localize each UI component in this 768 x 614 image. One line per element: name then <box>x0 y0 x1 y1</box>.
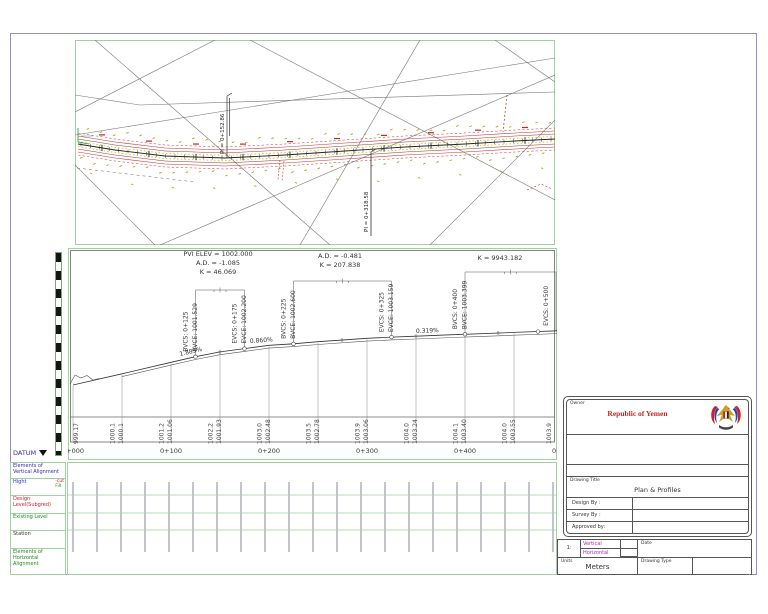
plan-view: PI = 0+152.86PI = 0+318.58 <box>75 40 555 245</box>
svg-text:1000.1: 1000.1 <box>118 423 125 444</box>
row-existing-level-label: Existing Level <box>11 514 65 531</box>
row-height-label: Hight -cutFill <box>11 479 65 496</box>
data-grid <box>67 462 557 575</box>
datum-label: DATUM <box>13 449 47 457</box>
svg-text:0+200: 0+200 <box>258 447 280 455</box>
title-block-inner: Owner Republic of Yemen <box>566 399 749 534</box>
owner-label: Owner <box>570 401 585 406</box>
misc-features <box>77 95 552 190</box>
drawing-type-label: Drawing Type <box>641 559 671 564</box>
svg-text:BVCE: 1002.600: BVCE: 1002.600 <box>290 290 297 339</box>
svg-text:0+100: 0+100 <box>160 447 182 455</box>
yemen-emblem-icon <box>709 402 743 432</box>
svg-text:1003.9: 1003.9 <box>546 423 553 444</box>
svg-text:PI = 0+318.58: PI = 0+318.58 <box>364 191 370 232</box>
horizontal-scale-label: Horizontal <box>581 549 620 558</box>
svg-text:1003.5: 1003.5 <box>306 423 313 444</box>
title-owner-row: Owner Republic of Yemen <box>567 400 748 435</box>
row-design-level-label: Design Level(Subgred) <box>11 496 65 514</box>
date-label: Date <box>641 541 652 546</box>
date-cell: Date <box>638 540 751 557</box>
drawing-title-row: Drawing Title Plan & Profiles <box>567 477 748 498</box>
project-info-box <box>567 435 748 465</box>
svg-text:BVCS: 0+400: BVCS: 0+400 <box>452 289 459 329</box>
scale-value: 1: <box>558 540 581 557</box>
datum-arrow-icon <box>39 450 47 456</box>
datum-scale-bar <box>55 252 62 456</box>
svg-text:0.319%: 0.319% <box>416 327 439 335</box>
corner-marks: ·· <box>745 571 751 579</box>
svg-text:0+300: 0+300 <box>356 447 378 455</box>
scale-value-cells <box>621 540 638 557</box>
profile-frame <box>71 251 555 443</box>
svg-text:1003.24: 1003.24 <box>412 419 419 444</box>
svg-text:0.860%: 0.860% <box>250 336 274 345</box>
svg-text:1004.1: 1004.1 <box>453 423 460 444</box>
svg-text:BVCS: 0+125: BVCS: 0+125 <box>183 311 190 351</box>
svg-text:A.D. = -0.481: A.D. = -0.481 <box>318 252 362 260</box>
svg-text:1002.2: 1002.2 <box>208 423 215 444</box>
svg-text:1003.9: 1003.9 <box>355 423 362 444</box>
approved-by-row: Approved by: <box>567 522 748 534</box>
svg-text:EVCS: 0+325: EVCS: 0+325 <box>379 292 386 332</box>
svg-text:1004.0: 1004.0 <box>502 423 509 444</box>
units-cell: Units Meters <box>558 558 638 574</box>
row-horizontal-alignment-label: Elements of Horizontal Alignment <box>11 549 65 575</box>
svg-text:1002.48: 1002.48 <box>265 419 272 444</box>
drawing-sheet: PI = 0+152.86PI = 0+318.58 999.170+00010… <box>0 0 768 614</box>
design-by-label: Design By : <box>567 498 633 509</box>
svg-text:1001.93: 1001.93 <box>216 419 223 444</box>
data-grid-lines <box>68 482 556 552</box>
svg-text:EVCS: 0+175: EVCS: 0+175 <box>232 303 239 343</box>
svg-text:0+400: 0+400 <box>454 447 476 455</box>
svg-text:1003.40: 1003.40 <box>461 419 468 444</box>
svg-text:1004.0: 1004.0 <box>404 423 411 444</box>
country-title: Republic of Yemen <box>567 409 708 418</box>
scale-direction-labels: Vertical Horizontal <box>581 540 621 557</box>
drawing-type-cell: Drawing Type <box>638 558 693 574</box>
svg-text:999.17: 999.17 <box>73 423 80 444</box>
svg-text:1003.55: 1003.55 <box>510 419 517 444</box>
row-station-label: Station <box>11 531 65 549</box>
svg-text:0+500: 0+500 <box>552 447 557 455</box>
scale-row: 1: Vertical Horizontal Date <box>558 540 751 558</box>
svg-text:PI = 0+152.86: PI = 0+152.86 <box>220 113 226 154</box>
row-vertical-alignment-label: Elements of Vertical Alignment <box>11 463 65 479</box>
svg-text:1003.06: 1003.06 <box>363 419 370 444</box>
drawing-title: Plan & Profiles <box>567 486 748 494</box>
svg-text:A.D. = -1.085: A.D. = -1.085 <box>196 259 240 267</box>
cut-fill-labels: -cutFill <box>55 480 64 489</box>
empty-cell <box>693 558 751 574</box>
profile-content: 999.170+0001000.11000.11001.21001.060+10… <box>68 250 557 455</box>
survey-by-row: Survey By : <box>567 510 748 522</box>
units-value: Meters <box>558 563 637 571</box>
profile-band-labels: Elements of Vertical Alignment Hight -cu… <box>10 462 66 575</box>
svg-text:1002.78: 1002.78 <box>314 419 321 444</box>
svg-text:K = 207.838: K = 207.838 <box>320 261 361 269</box>
height-label: Hight <box>13 479 26 485</box>
svg-text:1001.2: 1001.2 <box>159 423 166 444</box>
survey-by-label: Survey By : <box>567 510 633 521</box>
design-by-row: Design By : <box>567 498 748 510</box>
scale-units-table: 1: Vertical Horizontal Date Units Meters… <box>557 539 752 575</box>
svg-text:PVI ELEV = 1002.000: PVI ELEV = 1002.000 <box>183 250 252 258</box>
svg-text:K = 9943.182: K = 9943.182 <box>478 254 523 262</box>
svg-text:BVCE: 1003.399: BVCE: 1003.399 <box>462 280 469 329</box>
drawing-title-label: Drawing Title <box>570 478 600 483</box>
svg-text:1001.06: 1001.06 <box>167 419 174 444</box>
title-block: Owner Republic of Yemen <box>563 396 752 537</box>
svg-text:1003.0: 1003.0 <box>257 423 264 444</box>
svg-text:BVCS: 0+225: BVCS: 0+225 <box>281 298 288 338</box>
svg-text:EVCS: 0+500: EVCS: 0+500 <box>543 286 550 326</box>
profile-view: 999.170+0001000.11000.11001.21001.060+10… <box>68 248 557 460</box>
svg-text:EVCE: 1003.159: EVCE: 1003.159 <box>388 284 395 333</box>
spacer-row <box>567 465 748 477</box>
profile-border <box>69 249 557 460</box>
svg-text:EVCE: 1002.200: EVCE: 1002.200 <box>241 295 248 344</box>
svg-text:BVCE: 1001.529: BVCE: 1001.529 <box>192 303 199 352</box>
approved-by-label: Approved by: <box>567 522 633 534</box>
svg-text:K = 46.069: K = 46.069 <box>200 268 237 276</box>
road-alignment: PI = 0+152.86PI = 0+318.58 <box>78 93 555 236</box>
svg-text:1000.1: 1000.1 <box>110 423 117 444</box>
units-row: Units Meters Drawing Type <box>558 558 751 574</box>
svg-text:0+000: 0+000 <box>68 447 84 455</box>
vertical-scale-label: Vertical <box>581 540 620 549</box>
